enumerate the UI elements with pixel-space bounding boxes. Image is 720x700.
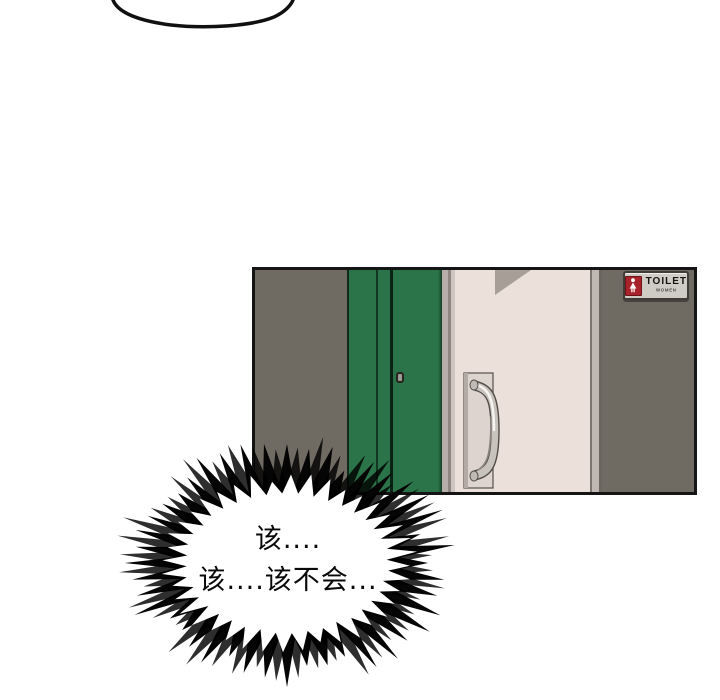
comic-page: { "bubble": { "line1": "该....", "line2":… — [0, 0, 720, 700]
burst-bubble-text: 该.... 该....该不会... — [128, 519, 448, 601]
burst-bubble-line-2: 该....该不会... — [128, 560, 448, 601]
burst-bubble-line-1: 该.... — [128, 519, 448, 560]
